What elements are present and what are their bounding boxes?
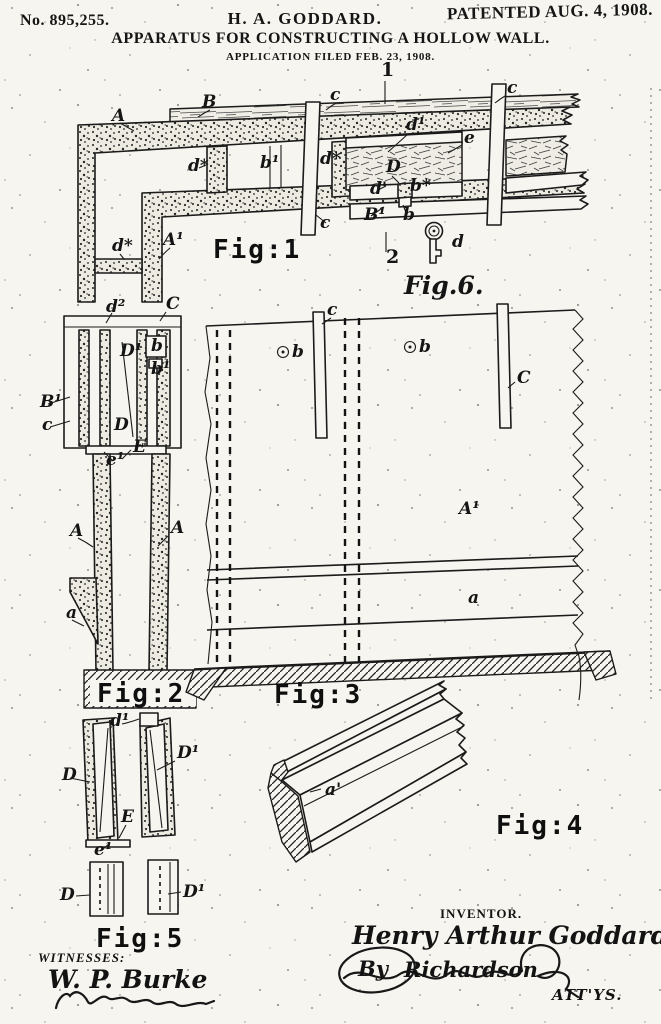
figure-caption-script: Fig.6. — [403, 271, 484, 300]
reference-label: B¹ — [363, 205, 386, 225]
piece-left — [90, 862, 123, 916]
reference-label: D — [61, 765, 77, 785]
inventor-signature: Henry Arthur Goddard — [351, 921, 661, 950]
reference-label: c — [327, 300, 338, 320]
reference-label: d — [452, 232, 464, 252]
clamp-bar-1 — [313, 312, 327, 438]
application-line: APPLICATION FILED FEB. 23, 1908. — [0, 51, 661, 63]
reference-label: A — [68, 521, 83, 541]
reference-label: e¹ — [94, 840, 112, 860]
figure-caption: Fig:3 — [274, 680, 362, 710]
reference-label: E — [132, 437, 147, 457]
cross-spacer — [207, 146, 227, 193]
reference-label: d' — [370, 179, 387, 199]
reference-label: c — [330, 85, 341, 105]
reference-label: B — [201, 92, 216, 112]
patent-sheet-page: AB1cccd*b¹d*d¹eDd'b*B¹bA¹d*2Fig:1 dFig.6… — [0, 0, 661, 1024]
witnesses-label: WITNESSES: — [38, 950, 125, 965]
reference-label: d* — [320, 149, 341, 169]
reference-label: D¹ — [176, 743, 199, 763]
witness-signature-1: W. P. Burke — [48, 965, 207, 994]
reference-label: b — [151, 336, 163, 356]
reference-label: d* — [188, 156, 209, 176]
inventor-name-header: H. A. GODDARD. — [150, 9, 460, 29]
reference-label: a — [468, 588, 479, 608]
reference-label: A — [169, 518, 184, 538]
inventor-label: INVENTOR. — [440, 906, 522, 921]
attorneys-label: ATT'YS. — [550, 986, 622, 1004]
reference-label: D¹ — [182, 882, 205, 902]
reference-label: b* — [410, 176, 431, 196]
bottom-plate — [86, 446, 166, 454]
key-head-dot — [433, 230, 436, 233]
reference-label: E — [120, 807, 135, 827]
attorney-signature: Richardson — [403, 957, 538, 982]
reference-label: b¹ — [151, 359, 170, 379]
bolt-dot-2 — [409, 346, 412, 349]
reference-label: b — [292, 342, 304, 362]
reference-label: b — [419, 337, 431, 357]
figure-caption: Fig:1 — [213, 235, 301, 265]
clamp-bar-2 — [497, 304, 511, 428]
top-clip — [140, 713, 158, 726]
wedge-right-inner — [146, 724, 168, 832]
piece-right — [148, 860, 178, 914]
strip-2 — [100, 330, 110, 446]
reference-label: A — [110, 106, 125, 126]
reference-label: d² — [106, 297, 125, 317]
patent-drawing-sheet: AB1cccd*b¹d*d¹eDd'b*B¹bA¹d*2Fig:1 dFig.6… — [0, 0, 661, 1024]
reference-label: c — [42, 415, 53, 435]
reference-label: D — [385, 157, 401, 177]
reference-label: a' — [325, 780, 341, 800]
strip-1 — [79, 330, 89, 446]
reference-label: D — [113, 415, 129, 435]
foot-band — [95, 259, 142, 273]
figure-caption: Fig:2 — [97, 679, 185, 709]
reference-label: a — [66, 603, 77, 623]
reference-label: B¹ — [39, 392, 62, 412]
figure-caption: Fig:4 — [496, 811, 584, 841]
reference-label: d¹ — [110, 711, 129, 731]
reference-label: D¹ — [119, 341, 142, 361]
reference-label: C — [517, 368, 531, 388]
reference-label: e¹ — [106, 450, 124, 470]
bolt-dot-1 — [282, 351, 285, 354]
reference-label: b — [403, 205, 415, 225]
reference-label: C — [166, 294, 180, 314]
wall-right — [149, 454, 170, 672]
reference-label: 2 — [386, 246, 399, 268]
reference-label: e — [464, 128, 475, 148]
patent-number: No. 895,255. — [20, 12, 110, 30]
reference-label: d* — [112, 236, 133, 256]
reference-label: A¹ — [161, 230, 184, 250]
reference-label: c — [320, 213, 331, 233]
reference-label: b¹ — [260, 153, 279, 173]
patent-title: APPARATUS FOR CONSTRUCTING A HOLLOW WALL… — [0, 30, 661, 48]
reference-label: d¹ — [406, 115, 425, 135]
reference-label: A¹ — [457, 499, 480, 519]
reference-label: c — [507, 78, 518, 98]
reference-label: D — [59, 885, 75, 905]
concrete-core-right — [506, 136, 568, 176]
attorney-by: By — [357, 956, 390, 981]
